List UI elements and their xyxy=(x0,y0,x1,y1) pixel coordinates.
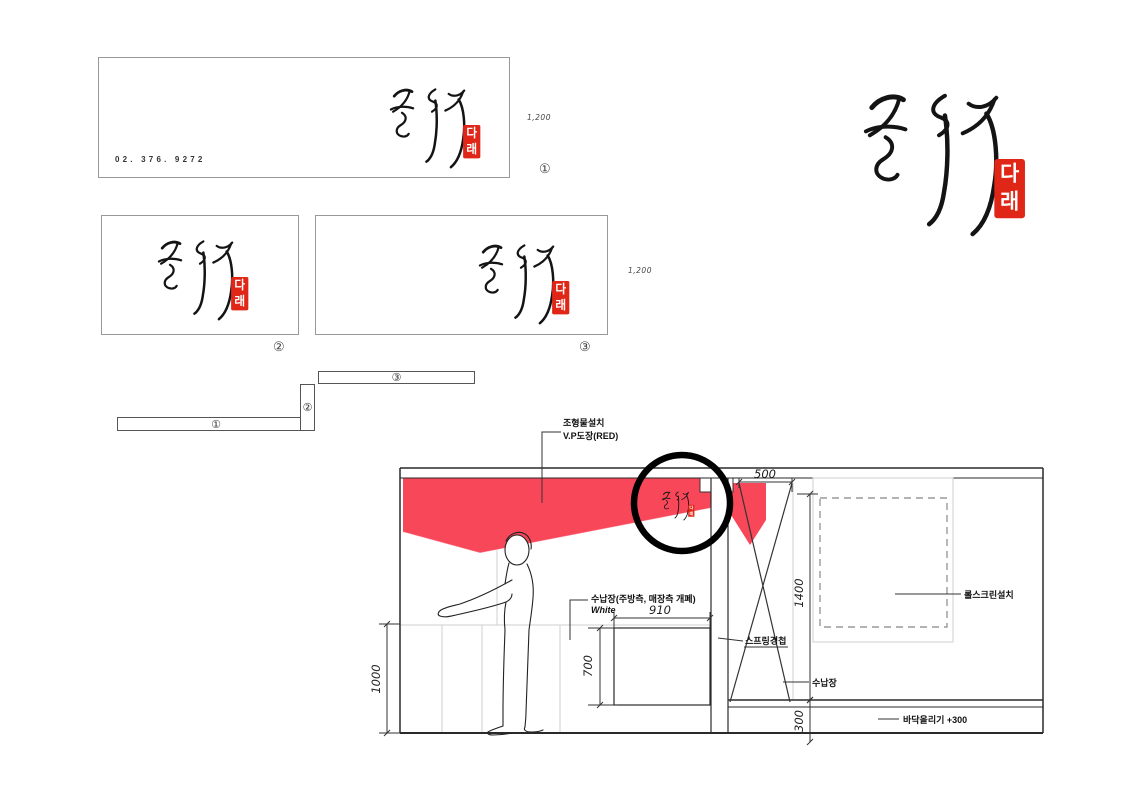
dimension-300-label: 300 xyxy=(792,710,806,732)
sign1-number: ① xyxy=(539,162,551,175)
plan-part-3-label: ③ xyxy=(392,371,402,384)
plan-part-3: ③ xyxy=(318,371,475,384)
brand-logo-sign1 xyxy=(382,78,482,172)
dimension-500-label: 500 xyxy=(754,467,776,481)
sign-panel-3 xyxy=(315,215,608,335)
dimension-1400-label: 1400 xyxy=(792,578,806,607)
brand-logo-large xyxy=(850,76,1028,242)
scale-label-2: 1,200 xyxy=(628,266,652,275)
sign-panel-2 xyxy=(101,215,299,335)
design-board: 다 래 02. 376. 9272 1,200 ① ② 1,200 ③ ① ② … xyxy=(0,0,1144,793)
dimension-700-label: 700 xyxy=(581,655,595,677)
phone-number: 02. 376. 9272 xyxy=(115,155,206,164)
annotation-spring-hinge-label: 스프링경첩 xyxy=(745,635,786,646)
annotation-sculpture-line2: V.P도장(RED) xyxy=(563,430,618,441)
annotation-roll-screen-label: 롤스크린설치 xyxy=(964,589,1014,600)
dimension-1000-label: 1000 xyxy=(369,664,383,693)
plan-part-1: ① xyxy=(117,417,315,431)
elevation-drawing: 500 1400 300 1000 910 700 xyxy=(350,408,1110,768)
annotation-counter-cabinet-line1: 수납장(주방측, 매장측 개폐) xyxy=(591,593,696,604)
dimension-910-label: 910 xyxy=(649,603,671,617)
sign3-number: ③ xyxy=(579,340,591,353)
plan-part-2: ② xyxy=(300,384,315,431)
brand-logo-sign2 xyxy=(150,230,250,324)
counter-cabinet xyxy=(614,628,710,705)
sign2-number: ② xyxy=(273,340,285,353)
brand-logo-sign3 xyxy=(471,234,571,328)
annotation-sculpture-line1: 조형물설치 xyxy=(563,417,604,428)
annotation-storage-label: 수납장 xyxy=(812,677,838,688)
roll-screen xyxy=(813,478,953,642)
sign-panel-1: 02. 376. 9272 xyxy=(98,57,510,178)
person-figure xyxy=(438,532,543,735)
scale-label-1: 1,200 xyxy=(527,113,551,122)
dimension-300 xyxy=(807,697,813,745)
plan-part-1-label: ① xyxy=(211,418,221,431)
annotation-counter-cabinet-line2: White xyxy=(591,605,616,615)
annotation-roll-screen: 롤스크린설치 xyxy=(895,589,1014,600)
plan-part-2-label: ② xyxy=(303,401,313,414)
annotation-floor-raise: 바닥올리기 +300 xyxy=(878,714,967,725)
annotation-floor-raise-label: 바닥올리기 +300 xyxy=(903,714,967,725)
